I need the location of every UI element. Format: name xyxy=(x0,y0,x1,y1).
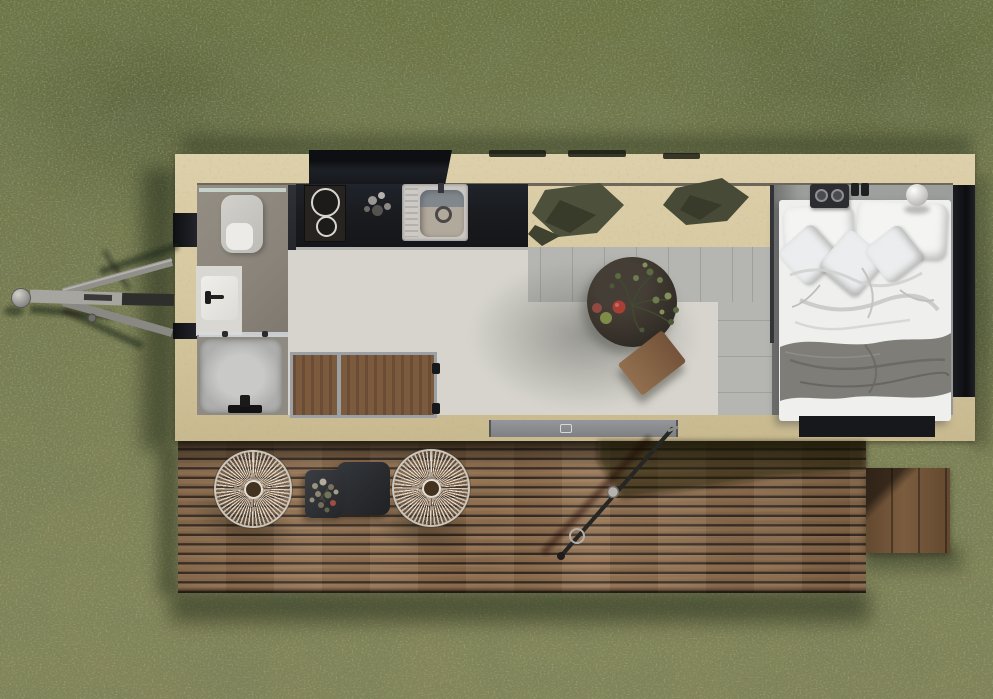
right-wall-segment xyxy=(953,185,975,397)
left-wall-segment xyxy=(173,323,197,339)
threshold-handle xyxy=(560,424,572,433)
glass-hinge xyxy=(262,331,268,337)
scene-root xyxy=(0,0,993,699)
radio-dial xyxy=(815,189,828,202)
counter-jar xyxy=(368,196,377,205)
sphere-lamp xyxy=(906,184,928,206)
tile-joint xyxy=(700,247,701,302)
left-wall-segment xyxy=(173,213,197,247)
wicker-lounge-chair xyxy=(394,451,468,525)
double-bed xyxy=(779,200,951,421)
radio-dial xyxy=(831,189,844,202)
toilet-seat xyxy=(226,223,253,250)
tile-joint xyxy=(732,247,733,302)
shower-mixer-knob xyxy=(240,395,250,407)
glass-hinge xyxy=(222,331,228,337)
roof-vent xyxy=(663,153,700,159)
fold-down-table xyxy=(290,352,437,418)
counter-jar xyxy=(364,206,370,212)
bedside-switch xyxy=(861,183,869,196)
house-shadow-right xyxy=(974,176,988,448)
deck-bottom-edge xyxy=(178,587,866,593)
fold-table-hinge xyxy=(432,403,440,414)
sink-faucet-ring xyxy=(435,206,452,223)
deck-shadow-left xyxy=(158,448,180,594)
cooktop-burner-large xyxy=(311,188,340,217)
cooktop-burner-small xyxy=(316,216,337,237)
washbasin-counter xyxy=(196,266,242,336)
lamp-shadow xyxy=(904,205,930,214)
deck-plant-tray xyxy=(305,470,343,518)
roof-vent xyxy=(568,150,626,157)
tile-joint xyxy=(718,320,772,321)
portable-radio xyxy=(810,184,849,208)
tile-joint xyxy=(718,356,772,357)
shower-glass-partition xyxy=(199,332,290,337)
sink-drainboard xyxy=(405,188,418,237)
under-bed-step xyxy=(799,416,935,437)
fold-table-divider xyxy=(337,355,341,415)
tiny-house xyxy=(175,154,975,441)
sink-faucet-pipe xyxy=(438,183,444,193)
side-step-platform xyxy=(866,468,950,553)
counter-jar xyxy=(384,203,391,210)
counter-jar xyxy=(372,205,383,216)
entrance-threshold xyxy=(489,420,678,437)
chair-center-hole xyxy=(246,482,261,497)
deck-underhouse-shadow xyxy=(178,441,866,467)
house-shadow-left xyxy=(142,168,178,450)
bedroom-partition-line xyxy=(770,185,774,343)
wicker-lounge-chair xyxy=(216,452,290,526)
kitchen-sink xyxy=(402,184,468,241)
deck-shadow-bottom xyxy=(170,589,870,623)
deck-side-table xyxy=(337,462,390,515)
bathroom-glass-partition xyxy=(199,188,286,192)
chair-center-hole xyxy=(424,481,439,496)
fold-table-grain xyxy=(293,355,434,415)
bedside-switch xyxy=(851,183,859,196)
washbasin-faucet-arm xyxy=(209,295,224,299)
toilet xyxy=(221,195,263,253)
counter-jar xyxy=(378,192,385,199)
roof-opening xyxy=(309,150,452,186)
fold-table-hinge xyxy=(432,363,440,374)
tile-joint xyxy=(752,247,753,302)
roof-vent xyxy=(489,150,546,157)
tile-joint xyxy=(718,392,772,393)
